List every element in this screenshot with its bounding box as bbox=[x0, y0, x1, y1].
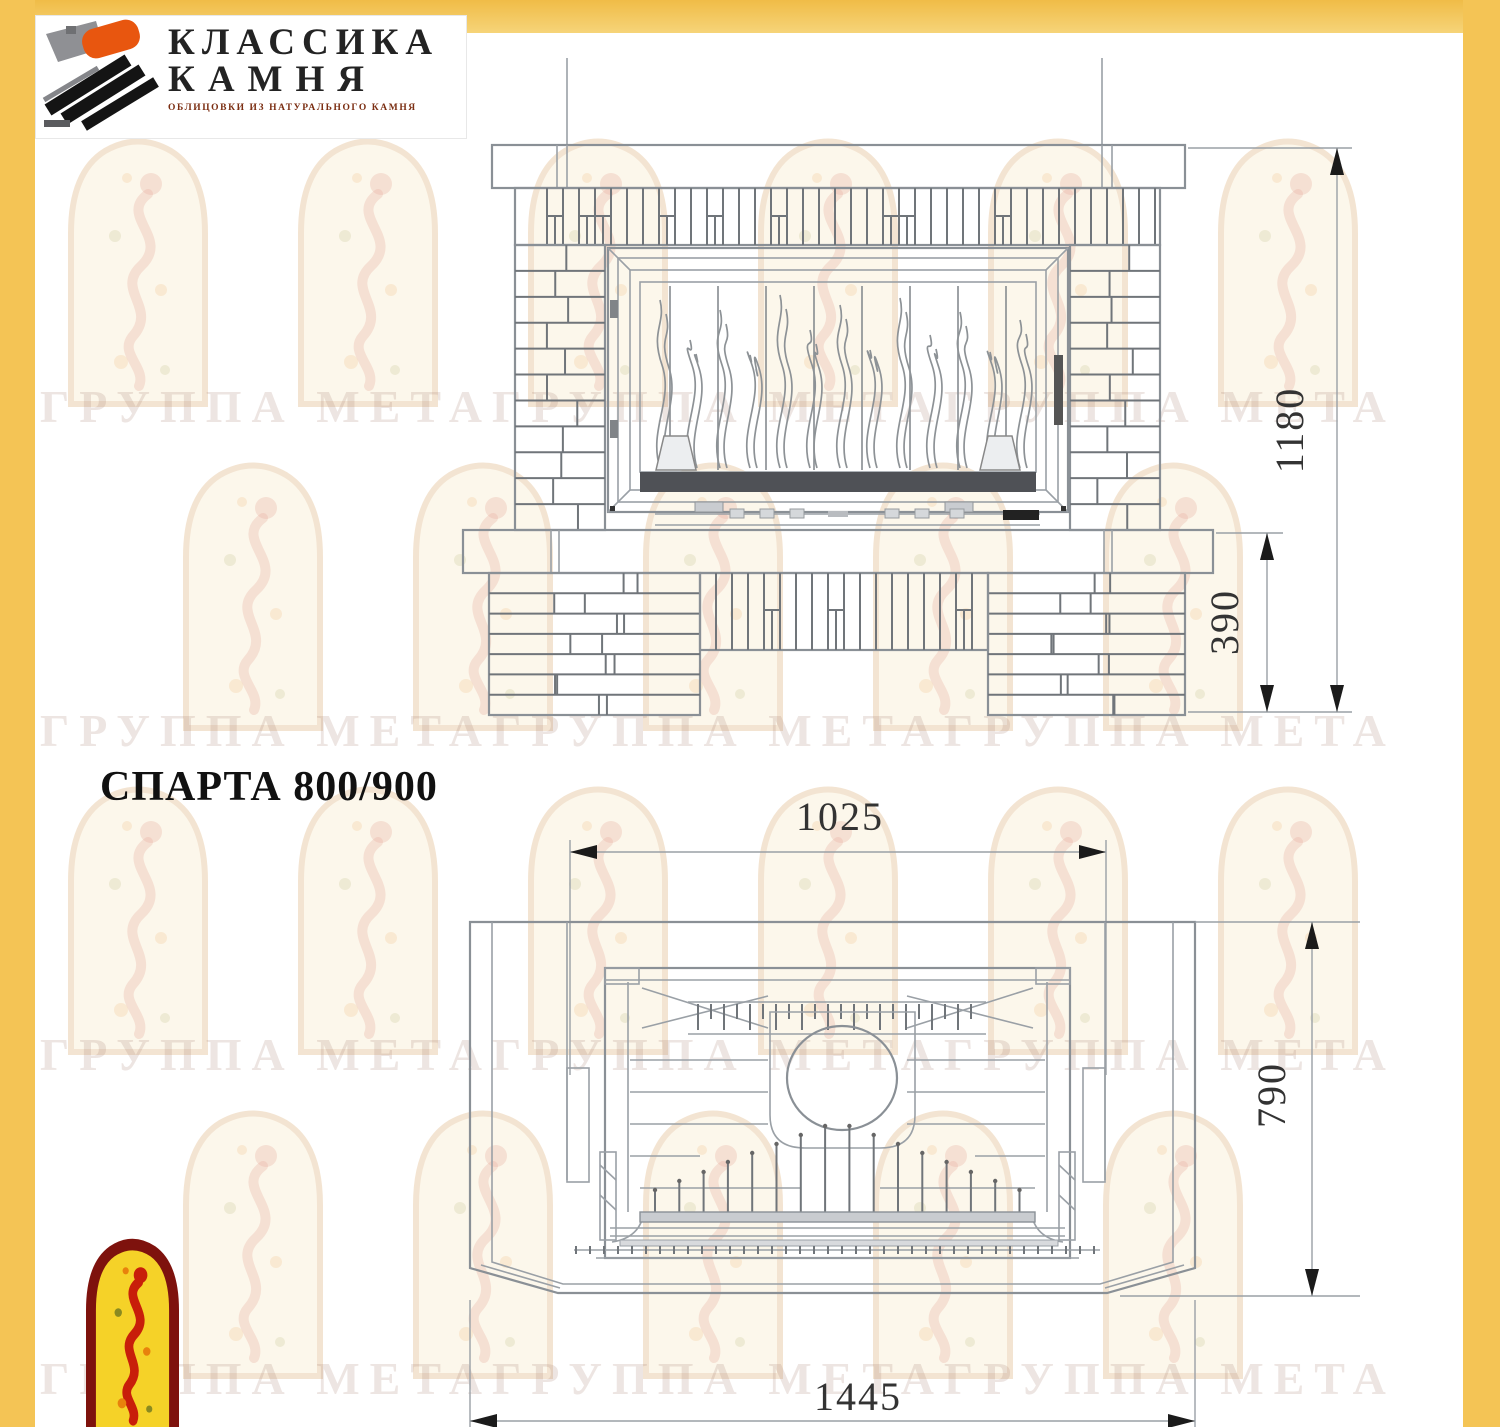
page-frame-left bbox=[0, 0, 35, 1427]
watermark-arch bbox=[531, 142, 665, 405]
dim-depth: 790 bbox=[1249, 1062, 1294, 1128]
hinge-bottom bbox=[610, 420, 618, 438]
door-swing-arc-right bbox=[1031, 1212, 1063, 1242]
bracket-left bbox=[600, 1152, 616, 1240]
watermark-text: ГРУППА МЕТАГРУППА МЕТАГРУППА МЕТА bbox=[40, 1029, 1396, 1080]
watermark-arch bbox=[876, 466, 1010, 729]
stone-logo-graphic bbox=[36, 16, 168, 136]
corner-arch-figure bbox=[91, 1245, 174, 1427]
ember-strip bbox=[640, 472, 1036, 492]
watermark-arch bbox=[1221, 790, 1355, 1053]
andiron-right bbox=[980, 436, 1020, 470]
dim-top-width: 1025 bbox=[796, 794, 884, 839]
watermark-text: ГРУППА МЕТАГРУППА МЕТАГРУППА МЕТА bbox=[40, 1353, 1396, 1404]
dim-total-width: 1445 bbox=[814, 1374, 902, 1419]
watermark-arch bbox=[71, 790, 205, 1053]
andiron-left bbox=[656, 436, 696, 470]
watermark-arch bbox=[416, 1114, 550, 1377]
door-handle bbox=[1054, 355, 1063, 425]
logo-title-line1: КЛАССИКА bbox=[168, 24, 439, 61]
dim-base-height: 390 bbox=[1202, 589, 1247, 655]
meta-group-arch-logo bbox=[91, 1245, 174, 1427]
watermark-arch bbox=[301, 142, 435, 405]
watermark-arch bbox=[301, 790, 435, 1053]
ashpan-latch bbox=[1003, 510, 1039, 520]
hearth-shelf bbox=[463, 530, 1213, 573]
fireplace-technical-drawing: ГРУППА МЕТАГРУППА МЕТАГРУППА МЕТА ГРУППА… bbox=[0, 0, 1500, 1427]
logo-text: КЛАССИКА КАМНЯ ОБЛИЦОВКИ ИЗ НАТУРАЛЬНОГО… bbox=[168, 16, 439, 138]
watermark-arch bbox=[531, 790, 665, 1053]
page-frame-right bbox=[1463, 0, 1500, 1427]
bracket-right bbox=[1059, 1152, 1075, 1240]
logo-subtitle: ОБЛИЦОВКИ ИЗ НАТУРАЛЬНОГО КАМНЯ bbox=[168, 103, 439, 113]
foot-left bbox=[695, 502, 723, 512]
company-logo: КЛАССИКА КАМНЯ ОБЛИЦОВКИ ИЗ НАТУРАЛЬНОГО… bbox=[35, 15, 467, 139]
watermark-arch bbox=[186, 466, 320, 729]
watermark-arch-pattern bbox=[71, 142, 1355, 1377]
plan-pillar-left bbox=[567, 1068, 589, 1182]
watermark-arch bbox=[186, 1114, 320, 1377]
spec-sheet-page: { "page": { "frame_color": "#f4c455", "p… bbox=[0, 0, 1500, 1427]
dim-total-height: 1180 bbox=[1267, 387, 1312, 474]
watermark-arch bbox=[71, 142, 205, 405]
logo-title-line2: КАМНЯ bbox=[168, 61, 439, 98]
hinge-top bbox=[610, 300, 618, 318]
model-title: СПАРТА 800/900 bbox=[100, 764, 438, 810]
plan-pillar-right bbox=[1083, 1068, 1105, 1182]
watermark-arch bbox=[1221, 142, 1355, 405]
